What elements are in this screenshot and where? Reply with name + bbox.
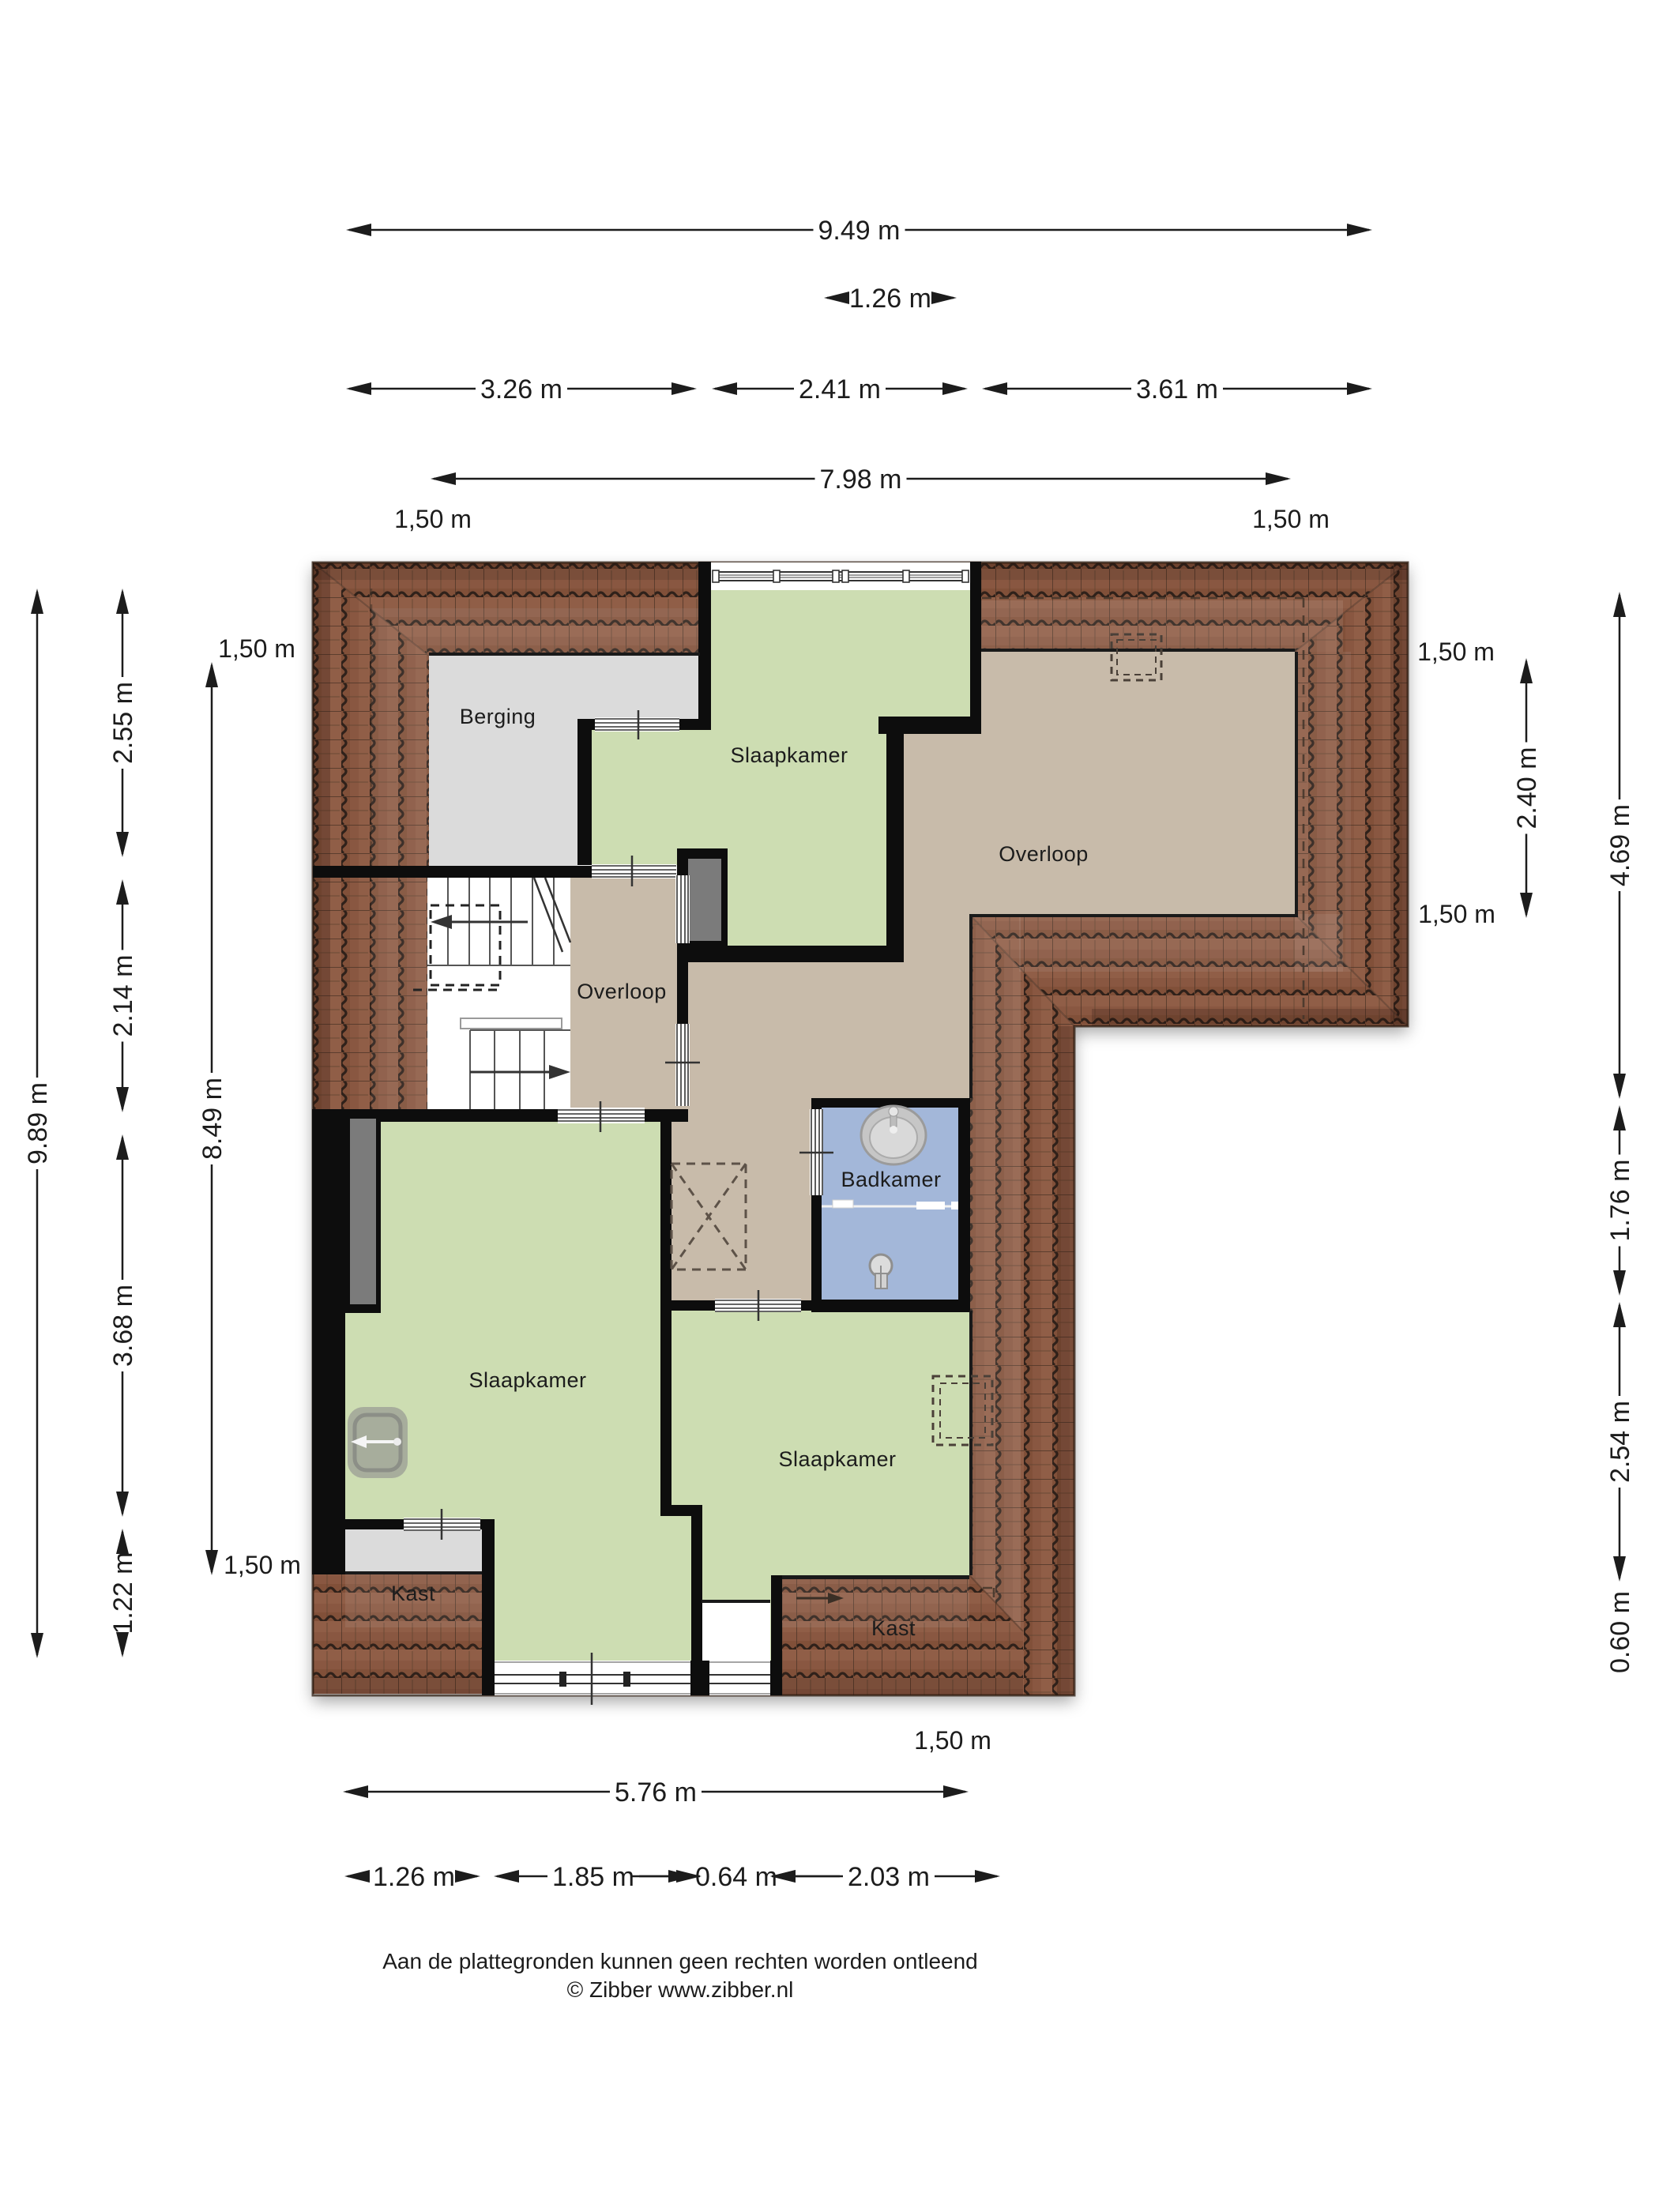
svg-text:Aan de plattegronden kunnen ge: Aan de plattegronden kunnen geen rechten… bbox=[382, 1949, 977, 1973]
svg-text:2.03 m: 2.03 m bbox=[848, 1862, 930, 1892]
svg-text:2.55 m: 2.55 m bbox=[108, 682, 138, 764]
svg-text:Berging: Berging bbox=[460, 705, 536, 728]
svg-text:3.26 m: 3.26 m bbox=[480, 374, 562, 404]
svg-text:Overloop: Overloop bbox=[999, 842, 1089, 866]
svg-text:Slaapkamer: Slaapkamer bbox=[468, 1368, 586, 1392]
svg-text:1.85 m: 1.85 m bbox=[552, 1862, 634, 1892]
svg-text:1,50 m: 1,50 m bbox=[394, 505, 472, 533]
svg-text:Overloop: Overloop bbox=[577, 980, 667, 1003]
svg-text:1.76 m: 1.76 m bbox=[1605, 1160, 1635, 1242]
svg-text:© Zibber www.zibber.nl: © Zibber www.zibber.nl bbox=[567, 1977, 794, 2002]
svg-text:1.22 m: 1.22 m bbox=[108, 1552, 138, 1635]
svg-text:1,50 m: 1,50 m bbox=[1418, 900, 1495, 928]
svg-text:Slaapkamer: Slaapkamer bbox=[778, 1447, 896, 1471]
svg-text:4.69 m: 4.69 m bbox=[1605, 804, 1635, 886]
svg-text:Slaapkamer: Slaapkamer bbox=[730, 743, 848, 767]
svg-text:Kast: Kast bbox=[871, 1616, 916, 1640]
svg-text:0.64 m: 0.64 m bbox=[695, 1862, 777, 1892]
svg-text:Kast: Kast bbox=[391, 1582, 435, 1605]
svg-text:9.89 m: 9.89 m bbox=[23, 1082, 53, 1164]
svg-text:2.54 m: 2.54 m bbox=[1605, 1401, 1635, 1483]
svg-text:1,50 m: 1,50 m bbox=[914, 1726, 991, 1755]
svg-text:0.60 m: 0.60 m bbox=[1605, 1591, 1635, 1673]
svg-text:1,50 m: 1,50 m bbox=[218, 634, 295, 663]
svg-text:7.98 m: 7.98 m bbox=[820, 465, 902, 495]
svg-text:3.61 m: 3.61 m bbox=[1136, 374, 1218, 404]
svg-text:9.49 m: 9.49 m bbox=[818, 216, 901, 246]
svg-text:2.14 m: 2.14 m bbox=[108, 955, 138, 1037]
svg-text:1,50 m: 1,50 m bbox=[1252, 505, 1330, 533]
svg-text:Badkamer: Badkamer bbox=[841, 1168, 941, 1191]
svg-text:1.26 m: 1.26 m bbox=[849, 284, 931, 314]
svg-text:2.40 m: 2.40 m bbox=[1512, 747, 1542, 829]
svg-text:2.41 m: 2.41 m bbox=[799, 374, 881, 404]
svg-text:8.49 m: 8.49 m bbox=[197, 1078, 228, 1160]
svg-text:3.68 m: 3.68 m bbox=[108, 1285, 138, 1367]
svg-text:1.26 m: 1.26 m bbox=[373, 1862, 455, 1892]
svg-text:1,50 m: 1,50 m bbox=[1417, 638, 1495, 666]
svg-text:5.76 m: 5.76 m bbox=[615, 1777, 697, 1808]
svg-text:1,50 m: 1,50 m bbox=[224, 1551, 301, 1579]
